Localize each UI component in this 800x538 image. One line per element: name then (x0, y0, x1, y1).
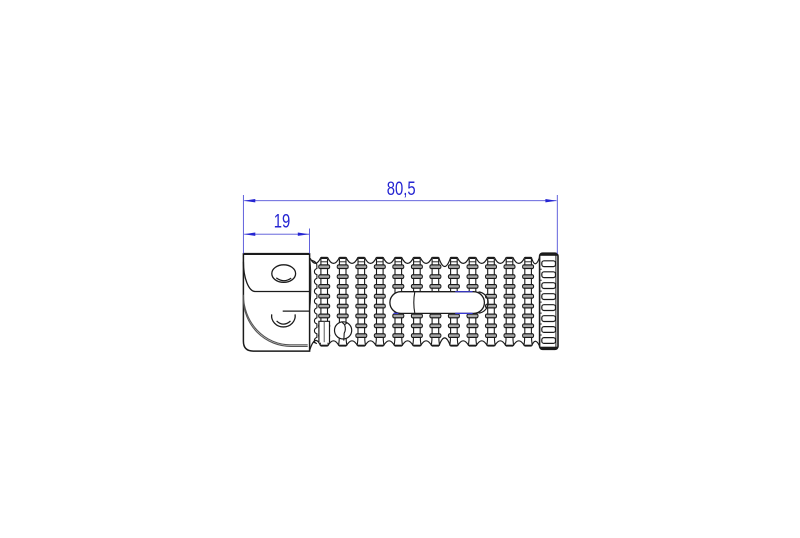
svg-text:80,5: 80,5 (387, 178, 416, 199)
svg-text:19: 19 (274, 211, 290, 232)
